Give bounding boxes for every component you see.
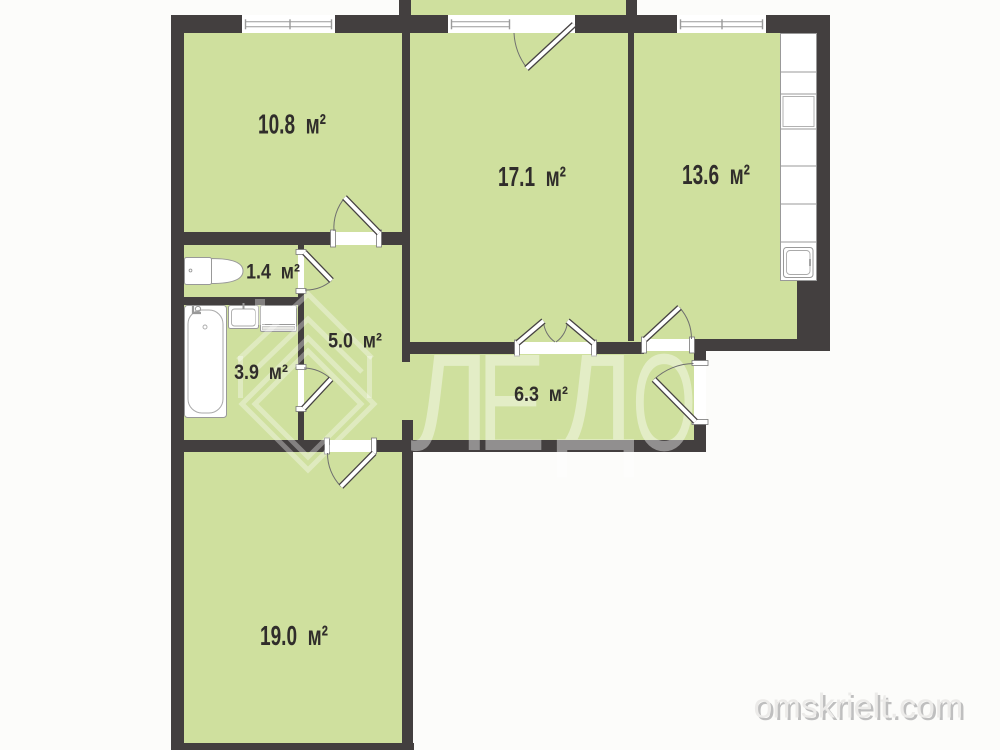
svg-text:5.0 м²: 5.0 м² [328, 329, 382, 353]
svg-text:О: О [632, 326, 696, 480]
svg-text:10.8 м²: 10.8 м² [258, 109, 326, 141]
svg-text:omskrielt.com: omskrielt.com [754, 688, 964, 726]
svg-text:1.4 м²: 1.4 м² [246, 260, 300, 284]
svg-text:6.3 м²: 6.3 м² [514, 383, 568, 407]
svg-text:3.9 м²: 3.9 м² [234, 361, 288, 385]
svg-text:19.0 м²: 19.0 м² [260, 620, 328, 652]
svg-text:13.6 м²: 13.6 м² [682, 159, 750, 191]
svg-text:Д: Д [556, 327, 636, 480]
svg-text:17.1 м²: 17.1 м² [498, 161, 566, 193]
